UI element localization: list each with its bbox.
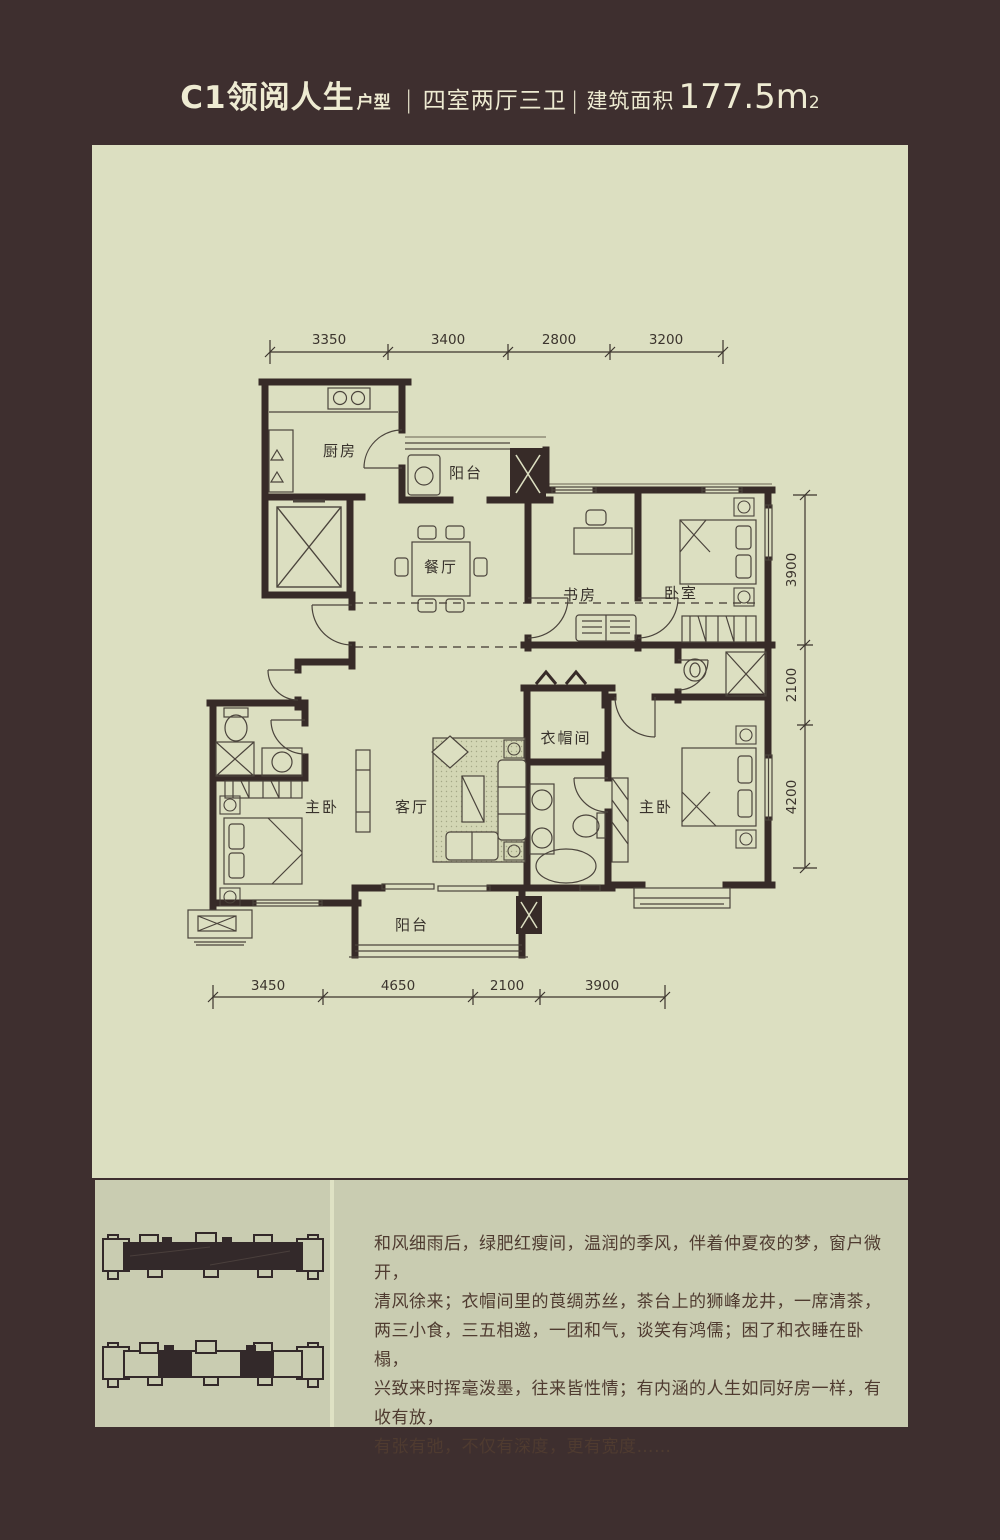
bed-icon bbox=[680, 520, 756, 584]
unit-layout: 四室两厅三卫 bbox=[423, 81, 567, 115]
description-box: 和风细雨后，绿肥红瘦间，温润的季风，伴着仲夏夜的梦，窗户微开， 清风徐来；衣帽间… bbox=[334, 1180, 908, 1427]
dimension-label: 2100 bbox=[490, 978, 524, 994]
description-line: 兴致来时挥毫泼墨，往来皆性情；有内涵的人生如同好房一样，有收有放， bbox=[374, 1375, 886, 1433]
title-divider: | bbox=[405, 86, 413, 114]
balcony-railing bbox=[349, 443, 528, 957]
room-label-balcony-top: 阳台 bbox=[449, 464, 483, 482]
area-exponent: 2 bbox=[809, 93, 820, 113]
desk-icon bbox=[574, 510, 632, 554]
dimension-label: 3900 bbox=[784, 553, 800, 587]
page-title: C1领阅人生户型 | 四室两厅三卫 | 建筑面积 177.5m2 bbox=[0, 72, 1000, 122]
room-label-kitchen: 厨房 bbox=[323, 442, 357, 460]
living-room-icons bbox=[356, 736, 526, 862]
room-label-master-right: 主卧 bbox=[639, 798, 673, 816]
dimension-label: 3900 bbox=[585, 978, 619, 994]
unit-code: C1领阅人生 bbox=[180, 72, 354, 117]
elevator-icon bbox=[277, 501, 341, 587]
dimension-label: 4200 bbox=[784, 780, 800, 814]
room-label-dining: 餐厅 bbox=[424, 558, 458, 576]
poster-page: { "colors":{"frame":"#3e2f2f","panel":"#… bbox=[0, 0, 1000, 1540]
description-line: 有张有弛，不仅有深度，更有宽度…… bbox=[374, 1433, 886, 1462]
dimension-label: 2100 bbox=[784, 668, 800, 702]
entry-chevrons bbox=[536, 672, 586, 684]
kitchen-counter-icon bbox=[269, 388, 398, 492]
description-line: 清风徐来；衣帽间里的莨绸苏丝，茶台上的狮峰龙井，一席清茶， bbox=[374, 1288, 886, 1317]
bathroom-tr-icons bbox=[684, 652, 766, 696]
master-left-bed-icon bbox=[224, 818, 302, 884]
dimension-label: 3450 bbox=[251, 978, 285, 994]
left-bath-icons bbox=[216, 708, 302, 798]
dimension-label: 2800 bbox=[542, 332, 576, 348]
bay-window-icon bbox=[188, 888, 730, 945]
sofa-study-icon bbox=[576, 615, 636, 641]
master-right-bed-icon bbox=[612, 748, 756, 862]
area-value: 177.5m bbox=[678, 77, 808, 117]
dimension-label: 3350 bbox=[312, 332, 346, 348]
dimension-label: 4650 bbox=[381, 978, 415, 994]
building-keyplan-1 bbox=[100, 1229, 326, 1285]
building-keyplan-2 bbox=[100, 1337, 326, 1393]
title-divider-2: | bbox=[571, 88, 579, 114]
keyplan-box bbox=[95, 1180, 330, 1427]
room-label-study: 书房 bbox=[563, 586, 597, 604]
description-text: 和风细雨后，绿肥红瘦间，温润的季风，伴着仲夏夜的梦，窗户微开， 清风徐来；衣帽间… bbox=[374, 1230, 886, 1462]
room-label-living: 客厅 bbox=[395, 798, 429, 816]
wardrobe-icon bbox=[682, 616, 756, 642]
room-label-cloakroom: 衣帽间 bbox=[540, 729, 591, 747]
description-line: 两三小食，三五相邀，一团和气，谈笑有鸿儒；困了和衣睡在卧榻， bbox=[374, 1317, 886, 1375]
description-line: 和风细雨后，绿肥红瘦间，温润的季风，伴着仲夏夜的梦，窗户微开， bbox=[374, 1230, 886, 1288]
unit-suffix: 户型 bbox=[357, 88, 391, 113]
floorplan-drawing: 厨房 阳台 餐厅 书房 卧室 主卧 客厅 衣帽间 主卧 阳台 3350 3400… bbox=[150, 300, 850, 1030]
area-label: 建筑面积 bbox=[586, 85, 674, 115]
dimension-label: 3400 bbox=[431, 332, 465, 348]
washing-machine-icon bbox=[408, 455, 440, 495]
room-label-bedroom: 卧室 bbox=[664, 584, 698, 602]
master-bath-icons bbox=[530, 784, 605, 891]
room-label-balcony-bottom: 阳台 bbox=[395, 916, 429, 934]
room-label-master-left: 主卧 bbox=[305, 798, 339, 816]
dimension-label: 3200 bbox=[649, 332, 683, 348]
wall-outline bbox=[210, 382, 772, 955]
